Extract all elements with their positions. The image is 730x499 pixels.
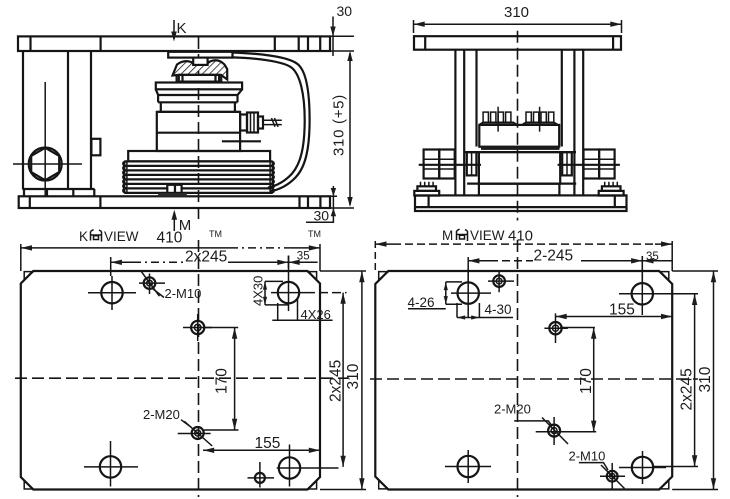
svg-text:2x245: 2x245 — [679, 368, 696, 410]
svg-text:30: 30 — [337, 3, 353, 19]
svg-text:2x245: 2x245 — [185, 249, 227, 266]
svg-text:410: 410 — [157, 230, 183, 247]
svg-text:170: 170 — [214, 368, 231, 394]
svg-text:35: 35 — [297, 251, 310, 263]
svg-text:310: 310 — [345, 363, 362, 389]
svg-text:30: 30 — [314, 208, 330, 224]
svg-text:2-M10: 2-M10 — [569, 449, 606, 464]
svg-text:310: 310 — [504, 4, 529, 21]
svg-text:VIEW: VIEW — [470, 228, 505, 243]
svg-text:TM: TM — [308, 229, 321, 239]
svg-text:2-M20: 2-M20 — [494, 402, 531, 417]
svg-text:K: K — [177, 20, 187, 37]
svg-text:310 (+5): 310 (+5) — [331, 94, 348, 156]
svg-text:2-M20: 2-M20 — [143, 407, 180, 422]
svg-text:410: 410 — [508, 228, 533, 245]
svg-text:M: M — [442, 228, 453, 243]
svg-text:155: 155 — [255, 435, 281, 452]
svg-text:2-M10: 2-M10 — [165, 286, 202, 301]
svg-text:2x245: 2x245 — [328, 360, 345, 402]
svg-text:TM: TM — [209, 229, 222, 239]
svg-text:4-30: 4-30 — [485, 302, 512, 317]
svg-text:K: K — [79, 229, 88, 244]
svg-text:4X30: 4X30 — [251, 276, 266, 306]
svg-text:2-245: 2-245 — [534, 248, 574, 265]
svg-text:170: 170 — [578, 368, 595, 394]
svg-text:4-26: 4-26 — [408, 295, 435, 310]
svg-text:VIEW: VIEW — [104, 229, 139, 244]
svg-text:310: 310 — [697, 366, 714, 392]
